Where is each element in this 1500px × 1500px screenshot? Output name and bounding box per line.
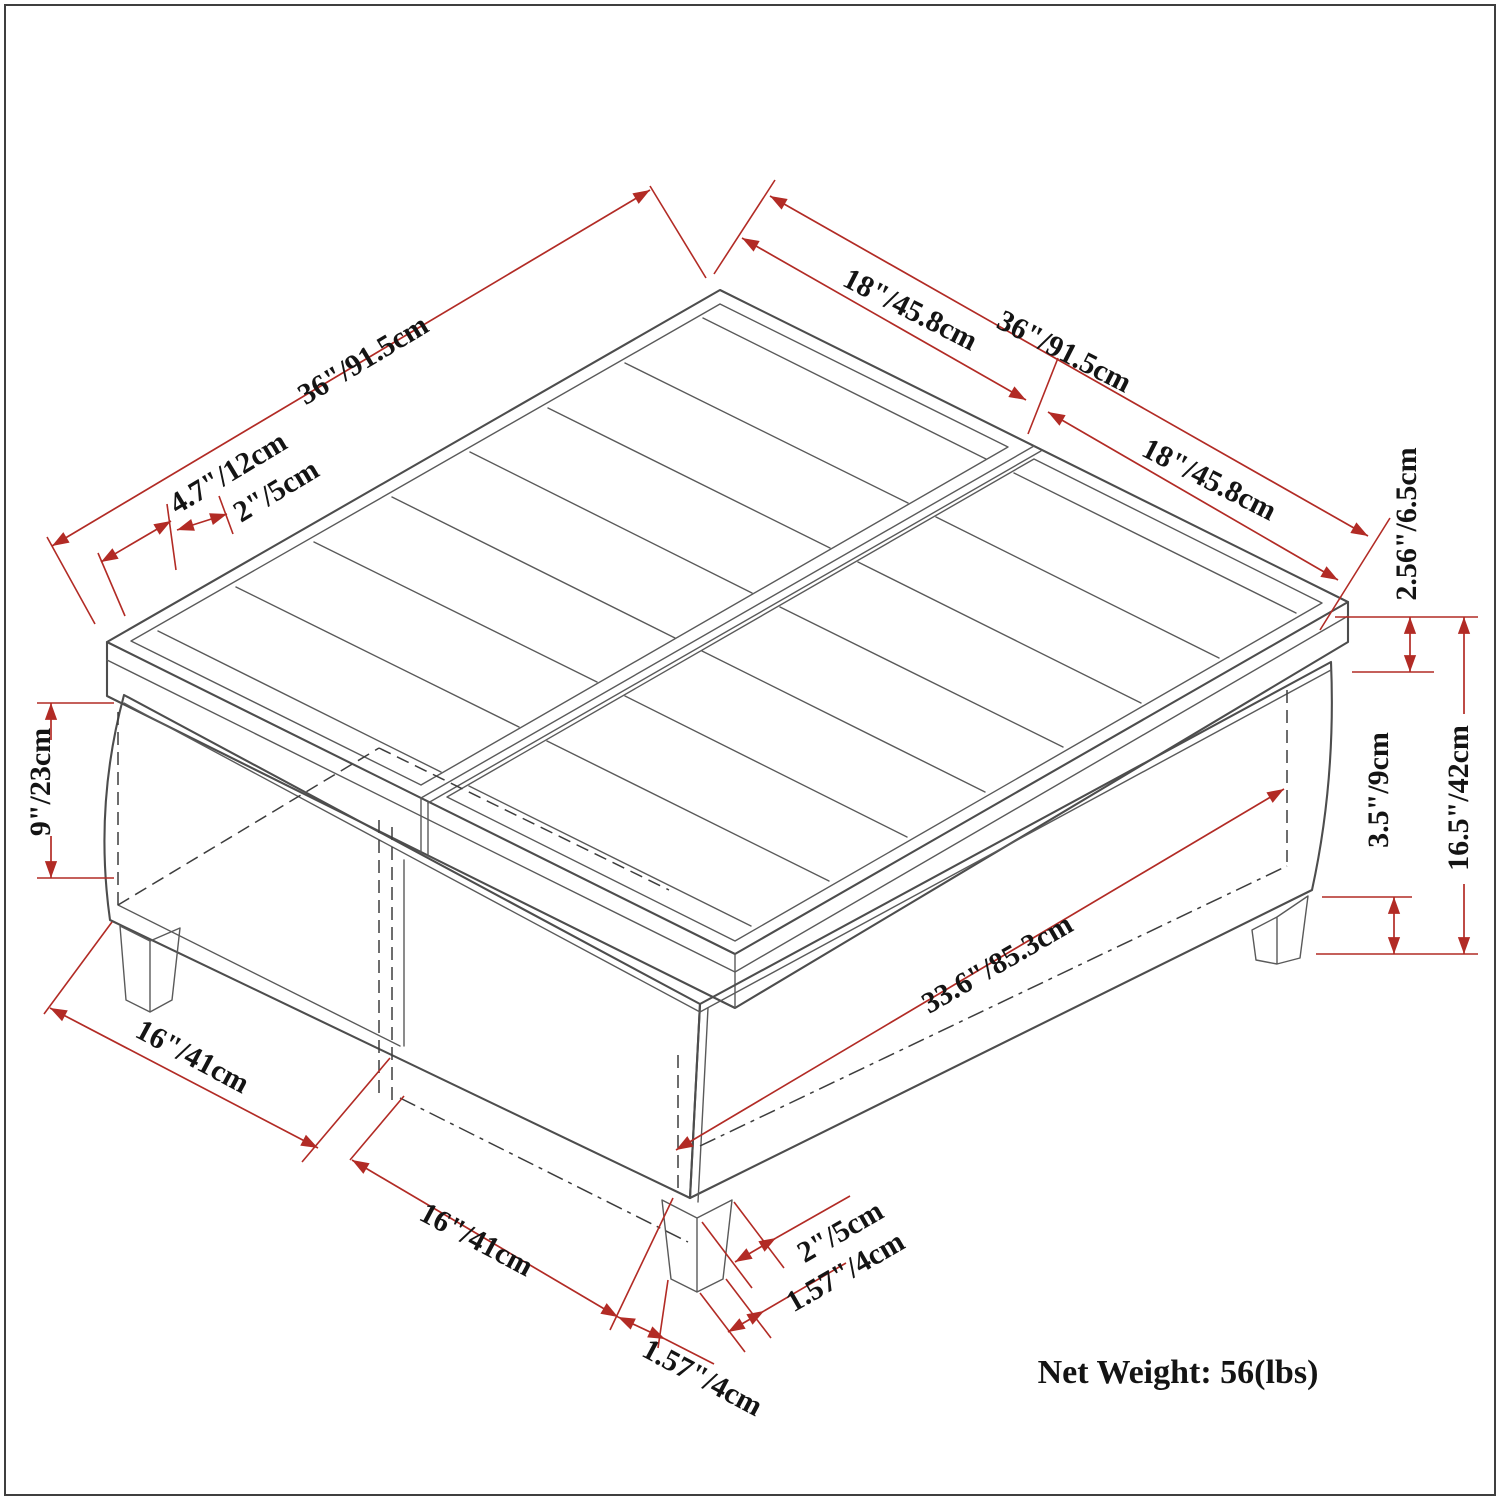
dimension-ticks xyxy=(37,617,1478,954)
dim-label-top-right-width: 36"/91.5cm xyxy=(992,304,1137,400)
dim-label-interior-width: 33.6"/85.3cm xyxy=(916,907,1078,1020)
base-front-edge xyxy=(698,1008,708,1202)
dim-label-leg-inset-left: 1.57"/4cm xyxy=(637,1332,768,1423)
net-weight-label: Net Weight: 56(lbs) xyxy=(1038,1354,1319,1391)
base-top-rim xyxy=(124,670,1331,1012)
dimension-annotations: 36"/91.5cm 4.7"/12cm 2"/5cm 18"/45.8cm 3… xyxy=(24,180,1478,1423)
cushion-sides xyxy=(107,602,1348,1008)
dim-label-compartment-width-2: 16"/41cm xyxy=(414,1196,538,1283)
dim-label-compartment-width-1: 16"/41cm xyxy=(130,1013,254,1100)
dim-label-cushion-thickness: 2.56"/6.5cm xyxy=(1390,447,1423,600)
hidden-interior-lines xyxy=(118,690,1287,1242)
base-right-face xyxy=(690,662,1332,1198)
dim-label-leg-height: 3.5"/9cm xyxy=(1362,732,1395,848)
legs xyxy=(120,896,1308,1292)
dim-label-opening-height: 9"/23cm xyxy=(24,728,57,836)
dim-label-total-height: 16.5"/42cm xyxy=(1442,725,1475,871)
front-leg xyxy=(662,1200,732,1292)
dimension-diagram-page: 36"/91.5cm 4.7"/12cm 2"/5cm 18"/45.8cm 3… xyxy=(0,0,1500,1500)
ottoman-dimension-diagram: 36"/91.5cm 4.7"/12cm 2"/5cm 18"/45.8cm 3… xyxy=(0,0,1500,1500)
dim-label-top-left-width: 36"/91.5cm xyxy=(292,308,434,411)
